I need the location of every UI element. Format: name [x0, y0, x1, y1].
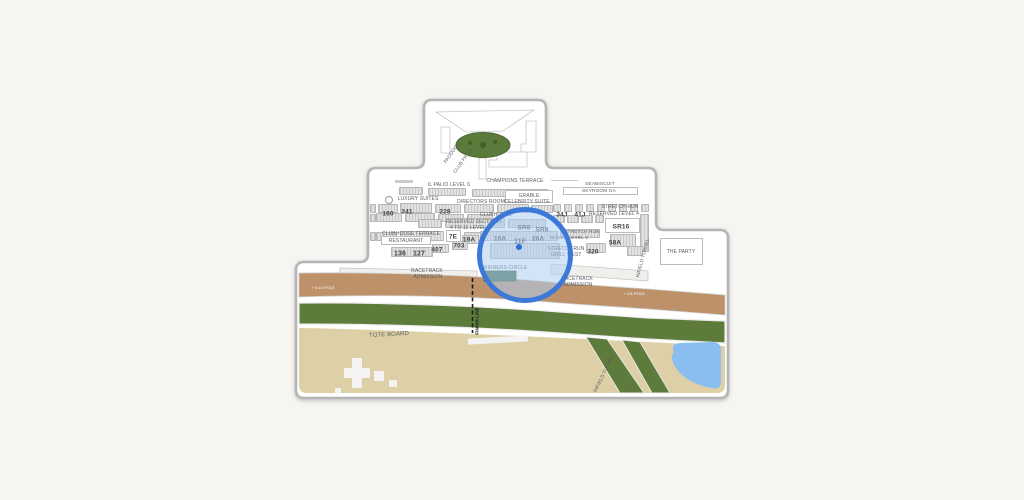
- champions-terrace-label: CHAMPIONS TERRACE: [486, 178, 543, 183]
- seat-block[interactable]: [641, 204, 649, 212]
- racetrack-adm-right-2-label: ADMISSION: [564, 282, 593, 287]
- seabiscuit-label: SEABISCUIT: [585, 182, 615, 187]
- seat-block[interactable]: [370, 204, 376, 213]
- luxury-suites-label: LUXURY SUITES: [398, 196, 439, 201]
- seat-block[interactable]: [399, 187, 423, 195]
- sec-34j-label: 34J: [556, 210, 567, 217]
- reserved-level-4-label: RESERVED LEVEL 4: [589, 211, 639, 216]
- sec-41j-label: 41J: [574, 210, 585, 217]
- venue-map: IL PALIO LEVEL 6CHAMPIONS TERRACESEABISC…: [0, 0, 1024, 500]
- finish-line-label: FINISH LINE: [475, 307, 480, 334]
- racetrack-adm-left-1-label: RACETRACK: [411, 268, 443, 273]
- pole-right-label: + 1/8 POLE: [623, 292, 645, 296]
- terrace-line: [551, 180, 578, 181]
- stretch-run-level4-label: STRETCH RUN: [602, 204, 639, 209]
- sec-58a-label: 58A: [609, 238, 621, 245]
- restaurant-label: RESTAURANT: [389, 238, 424, 243]
- stretch-run-sr-label: STRETCH RUN: [564, 229, 599, 234]
- celebrity-suite-label: CELEBRITY SUITE: [504, 199, 549, 204]
- sec-127-label: 127: [413, 250, 425, 257]
- racetrack-adm-left-2-label: ADMISSION: [414, 275, 443, 280]
- sec-19a-label: 19A: [463, 235, 475, 242]
- directors-room-label: DIRECTORS ROOM: [457, 199, 505, 204]
- magnifier-lens[interactable]: [477, 207, 573, 303]
- sec-7e-label: 7E: [449, 232, 457, 239]
- sec-407-label: 407: [431, 245, 442, 252]
- clubhouse-terrace-label: CLUBHOUSE TERRACE: [382, 231, 440, 236]
- sec-sr16-label: SR16: [613, 223, 630, 230]
- tote-board-label: TOTE BOARD: [369, 329, 409, 337]
- the-party-label: THE PARTY: [667, 250, 696, 255]
- selected-seat-dot[interactable]: [516, 244, 522, 250]
- grable-label: GRABLE: [519, 193, 540, 198]
- sec-703-label: 703: [453, 242, 464, 249]
- sec-160-label: 160: [382, 209, 393, 216]
- seat-block[interactable]: [418, 219, 442, 228]
- pole-left-label: + 1/16 POLE: [311, 286, 335, 290]
- deck-dash: [395, 180, 413, 183]
- seat-block[interactable]: [428, 188, 466, 196]
- skyroom-ga-label: SKYROOM GA: [582, 188, 616, 193]
- o-marker: [385, 196, 393, 204]
- il-palio-level-6-label: IL PALIO LEVEL 6: [428, 182, 470, 187]
- sec-136-label: 136: [394, 250, 406, 257]
- sec-228-label: 228: [439, 208, 450, 215]
- sec-320-label: 320: [587, 247, 598, 254]
- sec-241-label: 241: [401, 207, 412, 214]
